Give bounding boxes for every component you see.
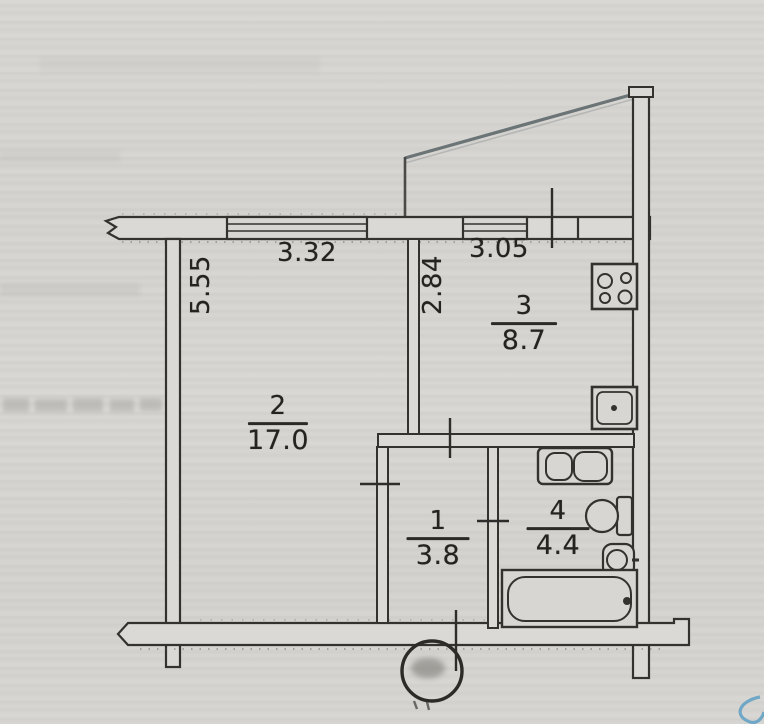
room-label-kitchen: 3 8.7	[491, 293, 557, 355]
balcony-outline	[405, 94, 634, 219]
entrance-circle-mark	[402, 641, 462, 710]
room-label-bathroom: 4 4.4	[527, 498, 590, 560]
wall-hall-left	[377, 447, 388, 623]
room-label-living-room: 2 17.0	[247, 393, 309, 455]
room-number: 3	[515, 293, 532, 320]
toilet-icon	[586, 497, 632, 535]
wall-kitchen-hall	[378, 434, 634, 447]
dimension-kitchen-width: 3.05	[469, 234, 529, 264]
stove-icon	[592, 264, 637, 309]
room-number: 1	[429, 508, 446, 535]
room-number: 2	[269, 393, 286, 420]
room-number: 4	[549, 498, 566, 525]
wall-top-band	[106, 217, 650, 239]
room-area: 4.4	[536, 532, 580, 560]
balcony-line-echo	[405, 99, 634, 163]
room-area: 8.7	[502, 327, 546, 355]
wall-hall-bathroom	[488, 447, 498, 628]
blue-pen-mark	[740, 697, 764, 722]
wall-top	[106, 217, 650, 239]
floor-plan-page: 3.32 3.05 2.84 5.55 2 17.0 3 8.7 1 3.8 4…	[0, 0, 764, 724]
dimension-living-width: 3.32	[277, 238, 337, 268]
washing-machine-icon	[538, 448, 612, 484]
room-area: 3.8	[416, 542, 460, 570]
room-label-hall: 1 3.8	[407, 508, 470, 570]
dimension-kitchen-depth: 2.84	[418, 255, 448, 315]
window-living-room	[227, 217, 367, 239]
bathtub-icon	[502, 570, 637, 627]
dimension-living-depth: 5.55	[186, 255, 216, 315]
balcony-diagonal-line	[405, 94, 634, 158]
room-area: 17.0	[247, 427, 309, 455]
floorplan-drawing	[0, 0, 764, 724]
wall-left	[166, 239, 180, 667]
kitchen-sink-icon	[592, 387, 637, 429]
